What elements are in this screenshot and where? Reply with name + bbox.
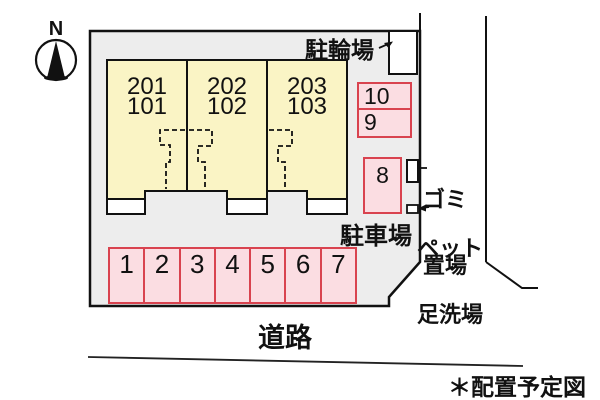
unit2-lower-number: 102 <box>187 97 267 117</box>
parking-row: 1 2 3 4 5 6 7 <box>108 247 357 304</box>
unit1-lower-number: 101 <box>107 97 187 117</box>
parking-space-9: 9 <box>357 110 412 138</box>
parking-space-1: 1 <box>108 247 145 304</box>
parking-space-5: 5 <box>251 247 286 304</box>
bicycle-shed-rect <box>389 31 417 74</box>
parking-space-6: 6 <box>286 247 321 304</box>
porch-unit1 <box>107 199 145 214</box>
bicycle-parking-label: 駐輪場 <box>305 31 374 65</box>
site-plan: N 201 101 202 102 203 103 駐輪場 10 9 8 ゴミ … <box>0 0 600 400</box>
parking-space-8: 8 <box>363 157 402 214</box>
pet-label-line1: ペット <box>417 238 483 260</box>
pet-wash-label: ペット 足洗場 <box>417 194 483 370</box>
footnote-label: ＊配置予定図 <box>448 368 586 400</box>
unit3-lower-number: 103 <box>267 97 347 117</box>
parking-space-2: 2 <box>145 247 180 304</box>
compass-north-label: N <box>45 18 67 41</box>
parking-space-7: 7 <box>322 247 357 304</box>
road-label: 道路 <box>258 316 312 355</box>
parking-space-3: 3 <box>181 247 216 304</box>
unit-103-203-label: 203 103 <box>267 77 347 117</box>
side-parking-stack: 10 9 <box>357 82 412 138</box>
compass-icon <box>36 40 76 81</box>
unit-102-202-label: 202 102 <box>187 77 267 117</box>
porch-unit2 <box>227 199 267 214</box>
parking-lot-label: 駐車場 <box>340 216 412 251</box>
pet-label-line2: 足洗場 <box>417 304 483 326</box>
garbage-box-rect <box>407 160 418 182</box>
porch-unit3 <box>307 199 347 214</box>
parking-space-10: 10 <box>357 82 412 110</box>
parking-space-4: 4 <box>216 247 251 304</box>
road-corner-curve <box>486 262 538 288</box>
unit-101-201-label: 201 101 <box>107 77 187 117</box>
